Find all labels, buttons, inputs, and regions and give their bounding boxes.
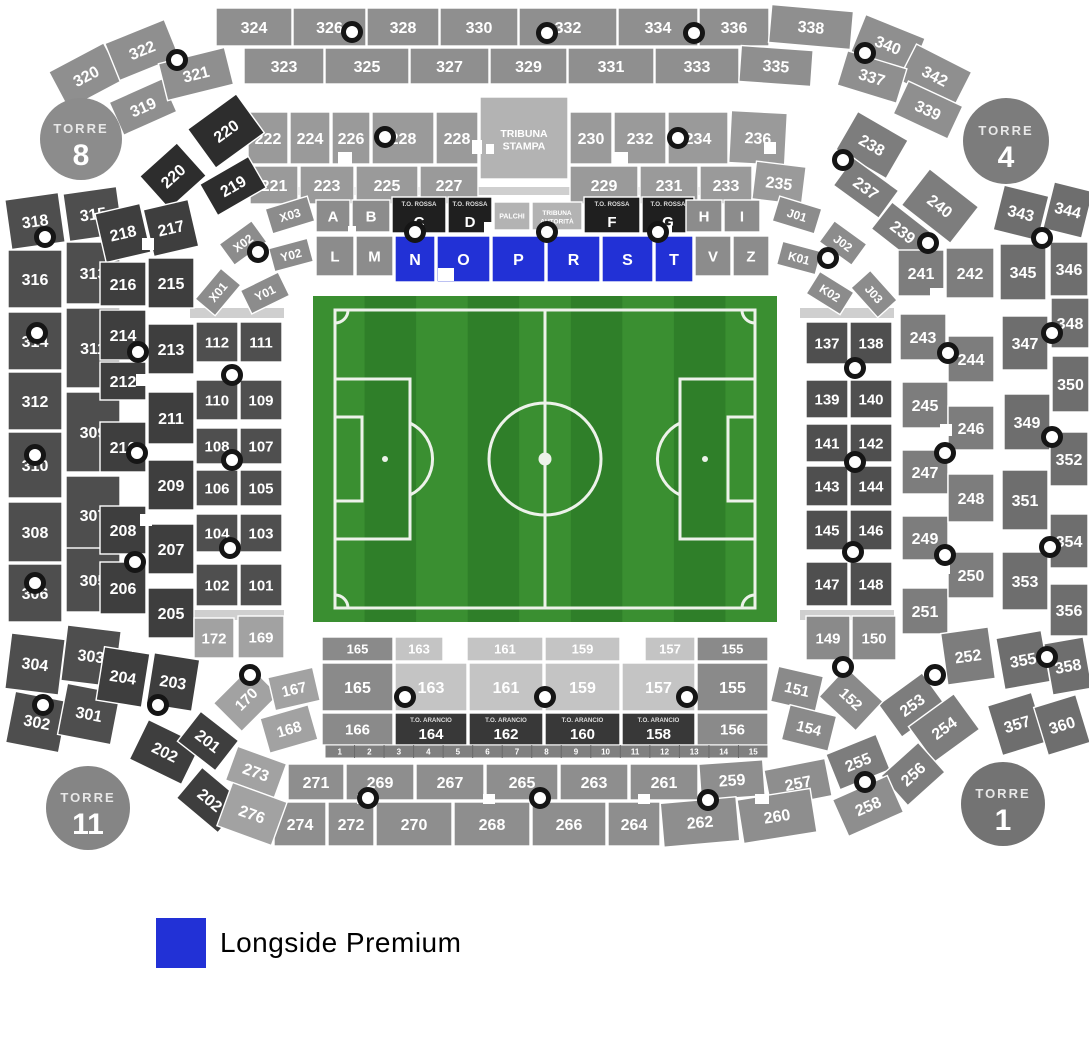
- section-271: 271: [288, 764, 344, 800]
- marker-dot: [847, 454, 864, 471]
- section-215: 215: [148, 258, 194, 308]
- section-325: 325: [325, 48, 409, 84]
- section-312: 312: [8, 372, 62, 430]
- section-330: 330: [440, 8, 518, 46]
- label: 4: [998, 141, 1015, 174]
- label: 10: [601, 748, 610, 757]
- label: P: [513, 252, 524, 269]
- label: 349: [1014, 415, 1041, 432]
- section-268: 268: [454, 802, 530, 846]
- section-p[interactable]: P: [492, 236, 545, 282]
- legend-swatch-longside-premium: [156, 918, 206, 968]
- label: 272: [338, 817, 365, 834]
- marker-dot: [847, 360, 864, 377]
- legend-label: Longside Premium: [220, 927, 461, 959]
- section-251: 251: [902, 588, 948, 634]
- section-147: 147: [806, 562, 848, 606]
- section-356: 356: [1050, 584, 1088, 636]
- label: 326: [316, 20, 343, 37]
- label: 316: [22, 272, 49, 289]
- label: 212: [110, 374, 137, 391]
- label: 325: [354, 59, 381, 76]
- section-f: T.O. ROSSAF: [584, 197, 640, 233]
- label: 215: [158, 276, 185, 293]
- marker-dot: [360, 790, 377, 807]
- label: 149: [815, 630, 840, 647]
- notch: [755, 794, 769, 804]
- label: TORRE: [60, 790, 115, 805]
- notch: [132, 640, 144, 652]
- label: H: [699, 208, 710, 225]
- notch: [638, 794, 650, 804]
- marker-dot: [835, 659, 852, 676]
- label: 347: [1012, 336, 1039, 353]
- label: T.O. ROSSA: [452, 201, 488, 208]
- section-166: 166: [322, 713, 393, 745]
- section-k01: K01: [777, 241, 822, 275]
- marker-dot: [222, 540, 239, 557]
- label: 356: [1056, 603, 1083, 620]
- section-154: 154: [781, 705, 836, 752]
- section-245: 245: [902, 382, 948, 428]
- label: 166: [345, 721, 370, 738]
- section-266: 266: [532, 802, 606, 846]
- label: 246: [958, 421, 985, 438]
- marker-dot: [224, 452, 241, 469]
- section-111: 111: [240, 322, 282, 362]
- section-151: 151: [771, 666, 824, 711]
- marker-dot: [130, 344, 147, 361]
- section-236: 236: [729, 111, 788, 166]
- section-165: 165: [322, 663, 393, 711]
- section-207: 207: [148, 524, 194, 574]
- marker-dot: [650, 224, 667, 241]
- label: 163: [408, 642, 430, 657]
- marker-dot: [920, 235, 937, 252]
- marker-dot: [250, 244, 267, 261]
- section-327: 327: [410, 48, 489, 84]
- notch: [348, 226, 356, 234]
- section-338: 338: [769, 4, 854, 49]
- notch: [142, 238, 154, 250]
- label: 213: [158, 342, 185, 359]
- label: 107: [248, 438, 273, 455]
- section-r[interactable]: R: [547, 236, 600, 282]
- section-246: 246: [948, 406, 994, 450]
- label: I: [740, 208, 744, 225]
- label: 146: [858, 522, 883, 539]
- label: 345: [1010, 265, 1037, 282]
- tower-torre-11: TORRE11: [46, 766, 130, 850]
- label: 327: [436, 59, 463, 76]
- marker-dot: [1044, 325, 1061, 342]
- marker-dot: [29, 325, 46, 342]
- label: 247: [912, 465, 939, 482]
- section-316: 316: [8, 250, 62, 308]
- label: 211: [158, 411, 184, 428]
- marker-dot: [857, 774, 874, 791]
- label: 249: [912, 531, 939, 548]
- marker-dot: [1034, 230, 1051, 247]
- marker-dot: [27, 447, 44, 464]
- section-328: 328: [367, 8, 439, 46]
- section-252: 252: [941, 627, 996, 685]
- marker-dot: [1044, 429, 1061, 446]
- section-242: 242: [946, 248, 994, 298]
- section-112: 112: [196, 322, 238, 362]
- row-number-strip: 123456789101112131415: [325, 745, 768, 758]
- label: Z: [746, 248, 755, 265]
- marker-dot: [927, 667, 944, 684]
- section-145: 145: [806, 510, 848, 550]
- section-155: 155: [697, 663, 768, 711]
- label: 329: [515, 59, 542, 76]
- notch: [136, 374, 148, 386]
- section-160: T.O. ARANCIO160: [545, 713, 620, 745]
- marker-dot: [937, 547, 954, 564]
- label: 169: [248, 629, 273, 646]
- label: 8: [73, 139, 90, 172]
- marker-dot: [1039, 649, 1056, 666]
- label: 336: [721, 20, 748, 37]
- section-i: I: [724, 200, 760, 232]
- tower-torre-4: TORRE4: [963, 98, 1049, 184]
- label: T.O. ARANCIO: [485, 717, 527, 724]
- notch: [472, 140, 482, 154]
- label: TORRE: [975, 786, 1030, 801]
- label: 270: [401, 817, 428, 834]
- marker-dot: [150, 697, 167, 714]
- section-267: 267: [416, 764, 484, 800]
- label: 164: [418, 726, 444, 743]
- label: 165: [344, 680, 371, 697]
- label: 245: [912, 398, 939, 415]
- section-208: 208: [100, 506, 146, 554]
- label: 137: [814, 335, 839, 352]
- section-347: 347: [1002, 316, 1048, 370]
- marker-dot: [169, 52, 186, 69]
- notch: [194, 250, 208, 262]
- section-269: 269: [346, 764, 414, 800]
- section-336: 336: [699, 8, 769, 46]
- label: 142: [858, 435, 883, 452]
- label: 324: [241, 20, 268, 37]
- label: 232: [627, 131, 654, 148]
- section-224: 224: [290, 112, 330, 164]
- section-346: 346: [1050, 242, 1088, 296]
- label: L: [330, 248, 339, 265]
- section-161: 161: [469, 663, 543, 711]
- label: 241: [908, 266, 935, 283]
- marker-dot: [532, 790, 549, 807]
- notch: [338, 152, 352, 164]
- label: 303: [77, 647, 106, 667]
- section-107: 107: [240, 428, 282, 464]
- section-324: 324: [216, 8, 292, 46]
- marker-dot: [344, 24, 361, 41]
- label: TRIBUNA: [542, 210, 572, 217]
- label: 160: [570, 726, 595, 743]
- section-103: 103: [240, 514, 282, 552]
- label: 328: [390, 20, 417, 37]
- label: 308: [22, 525, 49, 542]
- label: 268: [479, 817, 506, 834]
- label: 323: [271, 59, 298, 76]
- label: N: [409, 252, 421, 269]
- notch: [438, 268, 454, 281]
- label: 1: [338, 748, 343, 757]
- marker-dot: [242, 667, 259, 684]
- label: 225: [374, 178, 401, 195]
- label: T: [669, 252, 679, 269]
- legend: Longside Premium: [156, 918, 461, 968]
- label: 3: [397, 748, 402, 757]
- section-161: 161: [467, 637, 543, 661]
- section-164: T.O. ARANCIO164: [395, 713, 467, 745]
- marker-dot: [129, 445, 146, 462]
- label: 271: [303, 775, 330, 792]
- section-219: 219: [200, 156, 266, 215]
- section-143: 143: [806, 466, 848, 506]
- section-110: 110: [196, 380, 238, 420]
- section-tribuna-stampa: TRIBUNASTAMPA: [480, 97, 568, 179]
- marker-dot: [820, 250, 837, 267]
- section-172: 172: [194, 618, 234, 658]
- section-350: 350: [1052, 356, 1089, 412]
- label: 351: [1012, 493, 1039, 510]
- label: 109: [248, 392, 273, 409]
- label: 157: [645, 680, 672, 697]
- section-y02: Y02: [269, 238, 314, 272]
- marker-dot: [845, 544, 862, 561]
- section-304: 304: [5, 633, 65, 695]
- section-159: 159: [545, 663, 620, 711]
- section-t[interactable]: T: [655, 236, 693, 282]
- section-344: 344: [1043, 182, 1089, 238]
- label: STAMPA: [503, 141, 546, 153]
- section-270: 270: [376, 802, 452, 846]
- section-j01: J01: [772, 196, 822, 234]
- label: 224: [297, 131, 324, 148]
- section-139: 139: [806, 380, 848, 418]
- label: T.O. ARANCIO: [638, 717, 680, 724]
- label: 350: [1057, 377, 1084, 394]
- section-b: B: [352, 200, 390, 232]
- section-228: 228: [436, 112, 478, 164]
- section-159: 159: [545, 637, 620, 661]
- notch: [483, 794, 495, 804]
- section-331: 331: [568, 48, 654, 84]
- marker-dot: [679, 689, 696, 706]
- label: TORRE: [978, 123, 1033, 138]
- section-m: M: [356, 236, 393, 276]
- label: 7: [515, 748, 520, 757]
- label: 162: [493, 726, 518, 743]
- label: 263: [581, 775, 608, 792]
- football-pitch: [313, 296, 777, 622]
- label: 304: [21, 655, 50, 675]
- label: 333: [684, 59, 711, 76]
- label: 140: [858, 391, 883, 408]
- section-157: 157: [645, 637, 695, 661]
- label: 264: [621, 817, 648, 834]
- label: 209: [158, 478, 185, 495]
- section-109: 109: [240, 380, 282, 420]
- label: 150: [861, 630, 886, 647]
- label: 244: [958, 352, 985, 369]
- section-106: 106: [196, 470, 238, 506]
- label: 11: [72, 808, 104, 841]
- notch: [200, 364, 212, 374]
- label: 172: [201, 630, 226, 647]
- label: 112: [205, 334, 229, 351]
- section-233: 233: [700, 166, 752, 204]
- section-333: 333: [655, 48, 739, 84]
- section-263: 263: [560, 764, 628, 800]
- label: S: [622, 252, 633, 269]
- label: 266: [556, 817, 583, 834]
- label: T.O. ROSSA: [401, 201, 437, 208]
- section-345: 345: [1000, 244, 1046, 300]
- label: 155: [719, 680, 746, 697]
- section-248: 248: [948, 474, 994, 522]
- label: 229: [591, 178, 618, 195]
- section-230: 230: [570, 112, 612, 164]
- label: 226: [338, 131, 365, 148]
- label: 144: [858, 478, 884, 495]
- label: 259: [718, 772, 746, 791]
- label: 110: [205, 392, 229, 409]
- label: M: [368, 248, 381, 265]
- label: 330: [466, 20, 493, 37]
- label: B: [366, 208, 377, 225]
- notch: [484, 222, 494, 234]
- label: 223: [314, 178, 341, 195]
- section-335: 335: [739, 46, 813, 87]
- marker-dot: [27, 575, 44, 592]
- marker-dot: [835, 152, 852, 169]
- section-205: 205: [148, 588, 194, 638]
- label: 248: [958, 491, 985, 508]
- marker-dot: [686, 25, 703, 42]
- marker-dot: [670, 130, 687, 147]
- label: 12: [660, 748, 669, 757]
- label: 9: [574, 748, 579, 757]
- label: 251: [912, 604, 939, 621]
- label: A: [328, 208, 339, 225]
- section-351: 351: [1002, 470, 1048, 530]
- label: 335: [762, 58, 790, 77]
- label: 165: [347, 642, 369, 657]
- marker-dot: [940, 345, 957, 362]
- label: 207: [158, 542, 185, 559]
- marker-dot: [224, 367, 241, 384]
- label: O: [457, 252, 469, 269]
- label: 101: [248, 577, 273, 594]
- label: R: [568, 252, 580, 269]
- label: 205: [158, 606, 185, 623]
- section-h: H: [686, 200, 722, 232]
- label: 139: [814, 391, 839, 408]
- label: 2: [367, 748, 372, 757]
- section-213: 213: [148, 324, 194, 374]
- label: 243: [910, 330, 937, 347]
- marker-dot: [857, 45, 874, 62]
- section-220: 220: [140, 143, 207, 209]
- label: 331: [598, 59, 625, 76]
- label: 102: [204, 577, 229, 594]
- label: 141: [814, 435, 839, 452]
- section-148: 148: [850, 562, 892, 606]
- section-332: 332: [519, 8, 617, 46]
- label: 261: [651, 775, 678, 792]
- label: 214: [110, 328, 137, 345]
- label: 265: [509, 775, 536, 792]
- section-204: 204: [96, 647, 150, 708]
- notch: [140, 514, 152, 526]
- label: T.O. ROSSA: [650, 201, 686, 208]
- notch: [930, 288, 946, 300]
- notch: [486, 144, 494, 154]
- label: 143: [814, 478, 839, 495]
- notch: [764, 142, 776, 154]
- section-156: 156: [697, 713, 768, 745]
- label: 103: [248, 525, 273, 542]
- section-216: 216: [100, 262, 146, 306]
- label: 233: [713, 178, 740, 195]
- label: D: [465, 214, 476, 231]
- section-140: 140: [850, 380, 892, 418]
- section-155: 155: [697, 637, 768, 661]
- label: 352: [1056, 452, 1083, 469]
- section-150: 150: [852, 616, 896, 660]
- label: 227: [436, 178, 463, 195]
- section-357: 357: [987, 692, 1046, 755]
- marker-dot: [35, 697, 52, 714]
- label: 1: [995, 804, 1012, 837]
- label: 267: [437, 775, 464, 792]
- marker-dot: [937, 445, 954, 462]
- section-palchi: PALCHI: [494, 202, 530, 230]
- marker-dot: [127, 554, 144, 571]
- section-s[interactable]: S: [602, 236, 653, 282]
- label: 159: [569, 680, 596, 697]
- tower-torre-1: TORRE1: [961, 762, 1045, 846]
- section-137: 137: [806, 322, 848, 364]
- label: TORRE: [53, 121, 108, 136]
- label: 216: [110, 277, 137, 294]
- label: 231: [656, 178, 683, 195]
- marker-dot: [700, 792, 717, 809]
- section-169: 169: [238, 616, 284, 658]
- marker-dot: [377, 129, 394, 146]
- label: F: [607, 214, 616, 231]
- marker-dot: [539, 25, 556, 42]
- label: 312: [22, 394, 49, 411]
- section-149: 149: [806, 616, 850, 660]
- label: 334: [645, 20, 672, 37]
- section-329: 329: [490, 48, 567, 84]
- label: 13: [690, 748, 699, 757]
- label: 206: [110, 581, 137, 598]
- label: 159: [572, 642, 594, 657]
- section-353: 353: [1002, 552, 1048, 610]
- section-a: A: [316, 200, 350, 232]
- marker-dot: [407, 224, 424, 241]
- label: 138: [858, 335, 883, 352]
- section-360: 360: [1034, 695, 1089, 756]
- section-168: 168: [260, 705, 318, 753]
